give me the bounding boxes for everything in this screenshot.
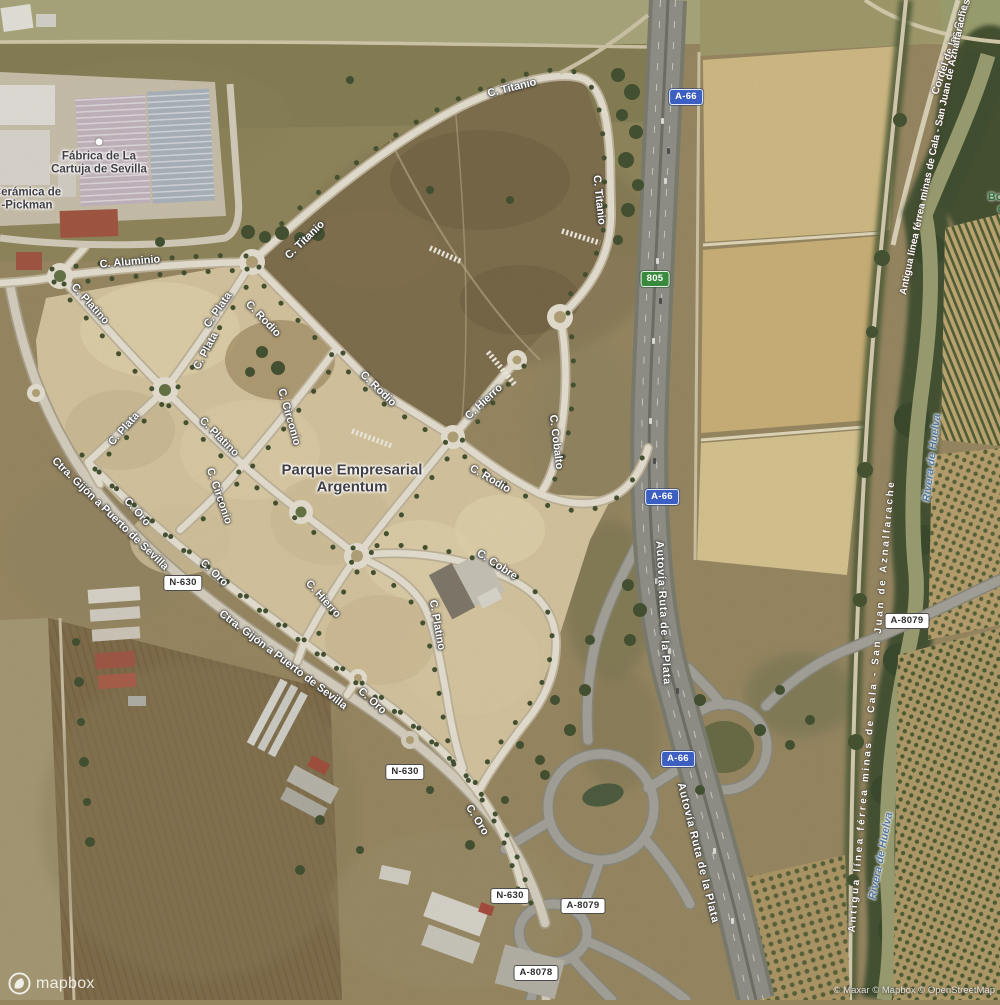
- road-label-c-circonio: C. Circonio: [204, 466, 235, 525]
- road-label-c-cobalto: C. Cobalto: [547, 414, 566, 470]
- road-label-c-circonio: C. Circonio: [275, 387, 303, 447]
- label-line: -Pickman: [0, 199, 61, 212]
- road-label-c-plata: C. Plata: [106, 410, 142, 448]
- route-shield-a-8078: A-8078: [514, 965, 559, 981]
- place-label-parque-empresarial-argentum: Parque EmpresarialArgentum: [282, 463, 423, 496]
- route-shield-a-66: A-66: [669, 89, 703, 105]
- path-label-antigua-linea-ferrea-minas-de-cala-san-juan-de-aznalfarache: Antigua línea férrea minas de Cala - San…: [847, 479, 898, 933]
- route-shield-a-66: A-66: [661, 751, 695, 767]
- road-label-c-platino: C. Platino: [197, 415, 241, 459]
- label-line: Fábrica de La: [51, 150, 147, 163]
- map-attribution[interactable]: © Maxar © Mapbox © OpenStreetMap: [834, 985, 995, 996]
- poi-dot-marker: [95, 137, 104, 146]
- label-line: Cartuja de Sevilla: [51, 163, 147, 176]
- road-label-c-platino: C. Platino: [427, 599, 448, 651]
- route-shield-n-630: N-630: [163, 575, 202, 591]
- route-shield-n-630: N-630: [385, 764, 424, 780]
- route-shield-a-66: A-66: [645, 489, 679, 505]
- road-label-autovia-ruta-de-la-plata: Autovía Ruta de la Plata: [653, 541, 673, 686]
- road-label-c-titanio: C. Titanio: [590, 175, 607, 226]
- road-label-ctra-gijon-a-puerto-de-sevilla: Ctra. Gijón a Puerto de Sevilla: [217, 608, 350, 712]
- label-line: Cerámica de: [0, 186, 61, 199]
- water-label-rivera-de-huelva: Rivera de Huelva: [921, 413, 944, 502]
- mapbox-icon: [8, 972, 31, 995]
- road-label-c-cobre: C. Cobre: [474, 547, 519, 582]
- road-label-c-titanio: C. Titanio: [486, 76, 537, 100]
- place-label-ceramica-pickman: Cerámica de-Pickman: [0, 186, 61, 211]
- path-label-antigua-linea-ferrea-minas-de-cala-san-juan-de-aznalfarache: Antigua línea férrea minas de Cala - San…: [898, 4, 970, 296]
- road-label-c-oro: C. Oro: [121, 495, 152, 528]
- road-label-c-rodio: C. Rodio: [358, 369, 399, 409]
- route-shield-805: 805: [641, 271, 670, 287]
- route-shield-a-8079: A-8079: [561, 898, 606, 914]
- route-shield-a-8079: A-8079: [885, 613, 930, 629]
- road-label-ctra-gijon-a-puerto-de-sevilla: Ctra. Gijón a Puerto de Sevilla: [49, 455, 170, 573]
- road-label-c-plata: C. Plata: [201, 290, 234, 330]
- road-label-c-hierro: C. Hierro: [463, 382, 505, 423]
- map-canvas[interactable]: C. TitanioC. TitanioC. TitanioC. Alumini…: [0, 0, 1000, 1000]
- path-label-cordel-de-las-canas: Cordel de las Cañas: [930, 0, 974, 96]
- road-label-c-rodio: C. Rodio: [243, 299, 283, 340]
- route-shield-n-630: N-630: [490, 888, 529, 904]
- water-label-rivera-de-huelva: Rivera de Huelva: [867, 811, 896, 900]
- mapbox-logo[interactable]: mapbox: [8, 972, 95, 995]
- road-label-c-oro: C. Oro: [355, 685, 388, 716]
- road-label-c-platino: C. Platino: [69, 281, 112, 327]
- road-label-c-oro: C. Oro: [463, 803, 491, 838]
- road-label-c-rodio: C. Rodio: [467, 462, 512, 495]
- map-labels-layer: C. TitanioC. TitanioC. TitanioC. Alumini…: [0, 0, 1000, 1000]
- road-label-c-aluminio: C. Aluminio: [99, 253, 161, 270]
- road-label-c-hierro: C. Hierro: [303, 578, 343, 621]
- place-label-fabrica-de-la-cartuja-de-sevilla: Fábrica de LaCartuja de Sevilla: [51, 150, 147, 175]
- landuse-label-bosque: Bosque: [988, 191, 1000, 203]
- label-line: Parque Empresarial: [282, 463, 423, 480]
- road-label-autovia-ruta-de-la-plata: Autovía Ruta de la Plata: [675, 781, 722, 924]
- label-line: Argentum: [282, 479, 423, 496]
- road-label-c-oro: C. Oro: [198, 557, 231, 589]
- road-label-c-titanio: C. Titanio: [283, 218, 327, 261]
- mapbox-wordmark: mapbox: [36, 975, 95, 993]
- road-label-c-plata: C. Plata: [191, 330, 221, 371]
